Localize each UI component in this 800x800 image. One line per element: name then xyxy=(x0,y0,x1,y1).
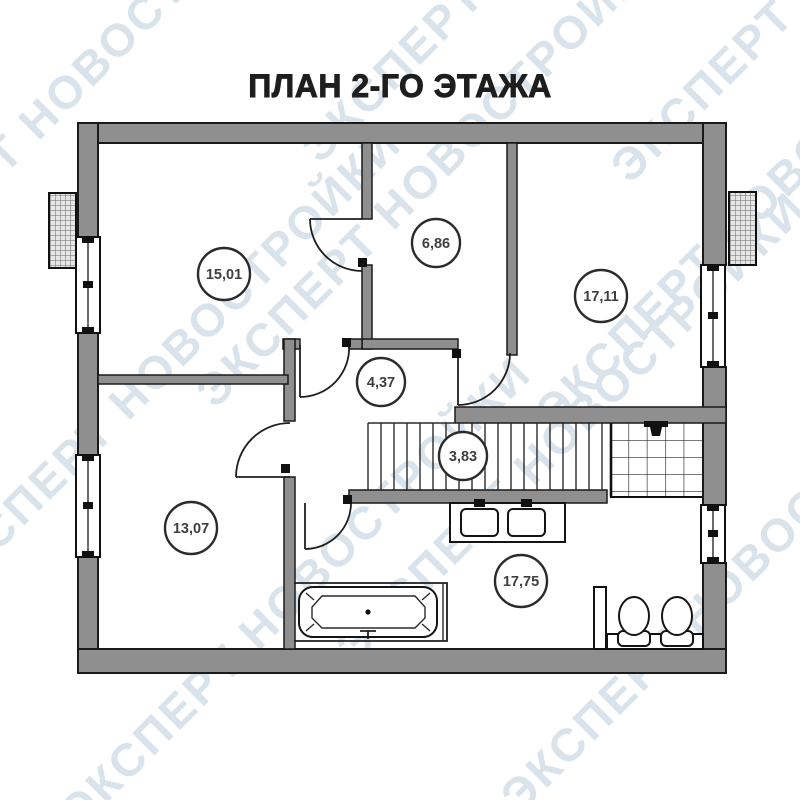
hatched-unit-right xyxy=(729,192,756,265)
room-area-value: 6,86 xyxy=(422,236,450,252)
wall-left-pier xyxy=(78,333,98,455)
partition-wall xyxy=(594,587,606,649)
room-area-value: 15,01 xyxy=(206,267,242,283)
wall-room15-bottom xyxy=(98,375,288,384)
toilet xyxy=(661,597,693,646)
window-right-top xyxy=(701,265,725,367)
window-left-bottom xyxy=(76,455,100,557)
faucet-icon xyxy=(521,499,532,507)
wall-between-15-and-6 xyxy=(362,143,372,219)
wall-room6-bottom xyxy=(362,339,458,349)
room-area-value: 17,11 xyxy=(583,289,619,305)
hatched-unit-left xyxy=(49,193,76,268)
room-label-17-75: 17,75 xyxy=(495,555,547,607)
wall-right-pier xyxy=(703,367,726,505)
page-title: ПЛАН 2-ГО ЭТАЖА xyxy=(248,68,551,104)
room-label-13-07: 13,07 xyxy=(165,502,217,554)
faucet-icon xyxy=(474,499,485,507)
room-label-17-11: 17,11 xyxy=(575,270,627,322)
room-label-6-86: 6,86 xyxy=(412,219,460,267)
wall-stairs-top xyxy=(455,407,726,423)
room-label-3-83: 3,83 xyxy=(439,432,487,480)
window-right-bottom xyxy=(701,505,725,563)
wall-room13-right xyxy=(284,477,295,649)
double-washbasin xyxy=(450,499,565,542)
wall-between-15-and-6 xyxy=(362,265,372,349)
room-area-value: 17,75 xyxy=(503,574,539,590)
wall-right-pier xyxy=(703,563,726,649)
room-label-15-01: 15,01 xyxy=(198,248,250,300)
wall-right-pier xyxy=(703,123,726,265)
tub-drain-dot xyxy=(365,609,370,614)
bathtub xyxy=(294,583,447,641)
floor-plan: ЭКСПЕРТ НОВОСТРОЙКИ ЭКСПЕРТ НОВОСТРОЙКИ … xyxy=(0,0,800,800)
room-label-4-37: 4,37 xyxy=(357,358,405,406)
room-area-value: 3,83 xyxy=(449,449,477,465)
window-left-top xyxy=(76,237,100,333)
tiled-cabin xyxy=(610,421,702,497)
wall-bottom xyxy=(78,649,726,673)
wall-between-6-and-17 xyxy=(507,143,517,355)
room-area-value: 13,07 xyxy=(173,521,209,537)
room-area-value: 4,37 xyxy=(367,375,395,391)
wall-left-pier xyxy=(78,557,98,649)
wall-top xyxy=(78,123,726,143)
wall-left-pier xyxy=(78,123,98,237)
toilet xyxy=(618,597,650,646)
